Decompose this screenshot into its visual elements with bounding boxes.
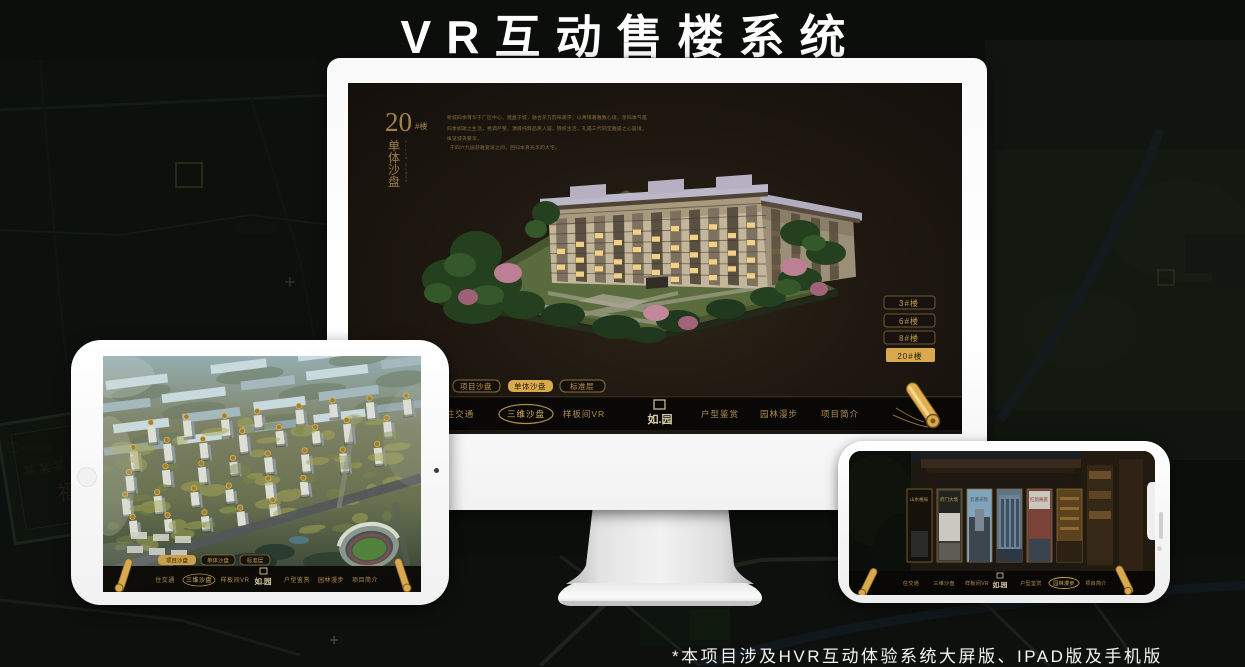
svg-text:标准层: 标准层: [247, 557, 264, 565]
svg-text:于四六九层舒雅宽境之间，回归本真光华的大宅。: 于四六九层舒雅宽境之间，回归本真光华的大宅。: [450, 144, 560, 151]
svg-text:住交通: 住交通: [155, 576, 175, 584]
svg-text:项目简介: 项目简介: [1085, 580, 1107, 587]
svg-text:单体沙盘: 单体沙盘: [514, 381, 546, 391]
svg-text:园林漫步: 园林漫步: [760, 409, 798, 419]
svg-text:样板间VR: 样板间VR: [563, 409, 605, 419]
svg-text:园林漫步: 园林漫步: [1053, 580, 1075, 587]
svg-text:户型鉴赏: 户型鉴赏: [701, 409, 739, 419]
svg-text:如.园: 如.园: [647, 412, 672, 426]
svg-text:住交通: 住交通: [446, 409, 475, 419]
svg-text:盘: 盘: [388, 174, 400, 189]
svg-text:S: S: [405, 179, 408, 183]
svg-text:山水格局: 山水格局: [910, 496, 928, 503]
svg-text:A: A: [405, 156, 408, 160]
svg-text:四季如歌之生活，格调严整，演绎纯粹品质人居，锦织生活，礼遇三: 四季如歌之生活，格调严整，演绎纯粹品质人居，锦织生活，礼遇三代同堂雅居之心居境，: [447, 125, 647, 132]
svg-text:如.园: 如.园: [993, 580, 1008, 589]
svg-text:标准层: 标准层: [570, 381, 594, 391]
svg-text:云著天际: 云著天际: [970, 496, 988, 503]
svg-text:三维沙盘: 三维沙盘: [507, 409, 545, 419]
svg-text:样板间VR: 样板间VR: [965, 580, 989, 587]
svg-text:8#楼: 8#楼: [899, 333, 919, 343]
svg-text:项目简介: 项目简介: [821, 409, 859, 419]
svg-text:样板间VR: 样板间VR: [221, 576, 250, 584]
svg-text:新城四季菁华于厂区中心，建盘于城，融合东方韵味美学，以菁琢著: 新城四季菁华于厂区中心，建盘于城，融合东方韵味美学，以菁琢著雅致心境，享四季气蕴: [447, 114, 647, 121]
svg-text:20: 20: [385, 107, 412, 137]
svg-text:3#楼: 3#楼: [899, 298, 919, 308]
svg-text:三维沙盘: 三维沙盘: [933, 580, 955, 587]
svg-text:红韵阁庭: 红韵阁庭: [1030, 496, 1048, 503]
svg-text:单体沙盘: 单体沙盘: [207, 557, 230, 565]
svg-text:项目简介: 项目简介: [352, 576, 378, 584]
svg-text:6#楼: 6#楼: [899, 316, 919, 326]
svg-text:项目沙盘: 项目沙盘: [460, 381, 492, 391]
svg-text:纵览城央繁华，: 纵览城央繁华，: [447, 135, 482, 142]
svg-text:如.园: 如.园: [254, 576, 272, 586]
svg-text:园林漫步: 园林漫步: [318, 576, 344, 584]
svg-text:项目沙盘: 项目沙盘: [166, 557, 189, 565]
svg-text:户型鉴赏: 户型鉴赏: [1020, 580, 1042, 587]
svg-text:住交通: 住交通: [903, 580, 919, 587]
svg-text:三维沙盘: 三维沙盘: [186, 576, 212, 584]
svg-text:#楼: #楼: [415, 121, 427, 131]
svg-text:户型鉴赏: 户型鉴赏: [284, 576, 310, 584]
svg-text:府门大境: 府门大境: [940, 496, 958, 503]
svg-text:20#楼: 20#楼: [897, 351, 922, 361]
